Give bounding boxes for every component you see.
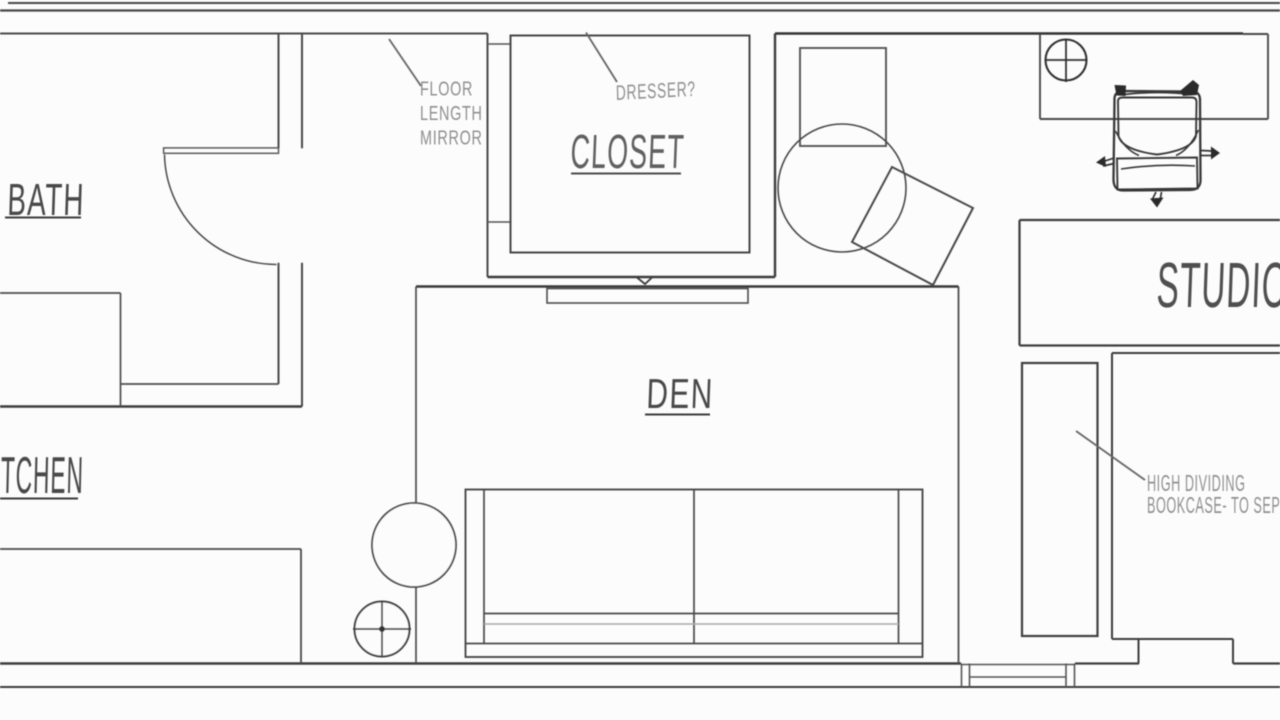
svg-text:LENGTH: LENGTH [420,102,483,125]
svg-text:DEN: DEN [646,370,715,417]
svg-text:BOOKCASE- TO SEP: BOOKCASE- TO SEP [1147,492,1280,518]
svg-text:FLOOR: FLOOR [420,77,473,100]
svg-text:MIRROR: MIRROR [420,126,483,149]
svg-text:STUDIO: STUDIO [1155,249,1280,320]
svg-text:CLOSET: CLOSET [570,126,686,179]
svg-text:KITCHEN: KITCHEN [0,446,85,504]
svg-text:DRESSER?: DRESSER? [616,77,696,105]
